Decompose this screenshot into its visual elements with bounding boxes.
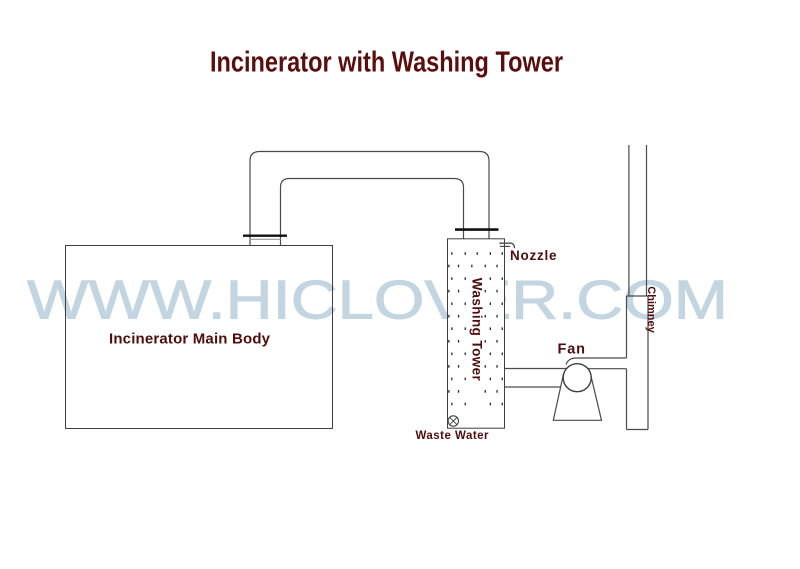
svg-text:Incinerator Main Body: Incinerator Main Body xyxy=(109,331,271,348)
svg-text:WWW.HICLOVER.COM: WWW.HICLOVER.COM xyxy=(27,270,728,331)
svg-text:Washing Tower: Washing Tower xyxy=(469,278,484,382)
svg-text:Incinerator with Washing Tower: Incinerator with Washing Tower xyxy=(210,47,563,79)
svg-text:Chimney: Chimney xyxy=(645,286,657,333)
svg-text:Waste Water: Waste Water xyxy=(416,430,490,442)
svg-text:Fan: Fan xyxy=(558,342,586,358)
svg-text:Nozzle: Nozzle xyxy=(510,248,557,263)
